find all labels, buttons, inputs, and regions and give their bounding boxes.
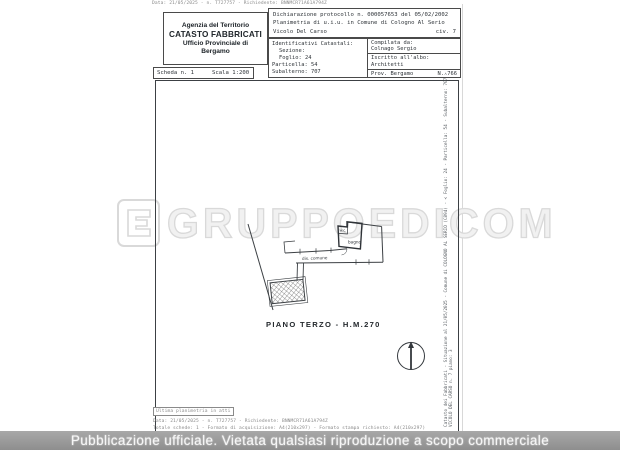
scheda-number: Scheda n. 1: [157, 70, 194, 76]
particella-field: Particella: 54: [272, 62, 364, 69]
catastal-identifiers-box: Identificativi Catastali: Sezione: Fogli…: [268, 38, 461, 78]
scala-value: Scala 1:200: [212, 70, 249, 76]
footer-meta-line1: Data: 21/05/2025 - n. T727757 - Richiede…: [153, 419, 328, 424]
office-line: Ufficio Provinciale di: [164, 40, 267, 47]
agency-header-box: Agenzia del Territorio CATASTO FABBRICAT…: [163, 12, 268, 65]
agency-name: Agenzia del Territorio: [164, 22, 267, 29]
civic-number: civ. 7: [436, 28, 456, 36]
cadastral-document-screenshot: Data: 21/05/2025 - n. T727757 - Richiede…: [0, 0, 620, 450]
plan-frame: [155, 80, 459, 433]
catastal-title: Identificativi Catastali:: [272, 41, 364, 48]
side-text-line2: VICOLO DEL CARSO n. 7 piano: 3: [449, 85, 454, 427]
catasto-fabbricati-title: CATASTO FABBRICATI: [164, 30, 267, 39]
ultima-planimetria-box: Ultima planimetria in atti: [153, 407, 234, 416]
foglio-field: Foglio: 24: [272, 55, 364, 62]
plan-caption: PIANO TERZO - H.M.270: [266, 320, 381, 329]
compiler-column: Compilata da: Colnago Sergio Iscritto al…: [367, 39, 460, 77]
sezione-field: Sezione:: [272, 48, 364, 55]
protocol-line: Dichiarazione protocollo n. 000057653 de…: [273, 11, 456, 19]
declaration-box: Dichiarazione protocollo n. 000057653 de…: [268, 8, 461, 38]
side-reference-text: Catasto dei Fabbricati - Situazione al 2…: [444, 85, 455, 427]
top-meta-text: Data: 21/05/2025 - n. T727757 - Richiede…: [152, 1, 327, 6]
albo-value: Architetti: [371, 62, 457, 68]
street-name: Vicolo Del Carso: [273, 28, 327, 36]
publication-banner: Pubblicazione ufficiale. Vietata qualsia…: [0, 431, 620, 450]
publication-banner-text: Pubblicazione ufficiale. Vietata qualsia…: [71, 433, 549, 448]
office-city: Bergamo: [164, 48, 267, 55]
compilata-value: Colnago Sergio: [371, 46, 457, 52]
prov-field: Prov. Bergamo: [371, 71, 413, 77]
scheda-scala-box: Scheda n. 1 Scala 1:200: [153, 67, 254, 79]
subalterno-field: Subalterno: 707: [272, 69, 364, 76]
planimetria-line: Planimetria di u.i.u. in Comune di Colog…: [273, 19, 456, 27]
catastal-left-column: Identificativi Catastali: Sezione: Fogli…: [269, 39, 367, 77]
